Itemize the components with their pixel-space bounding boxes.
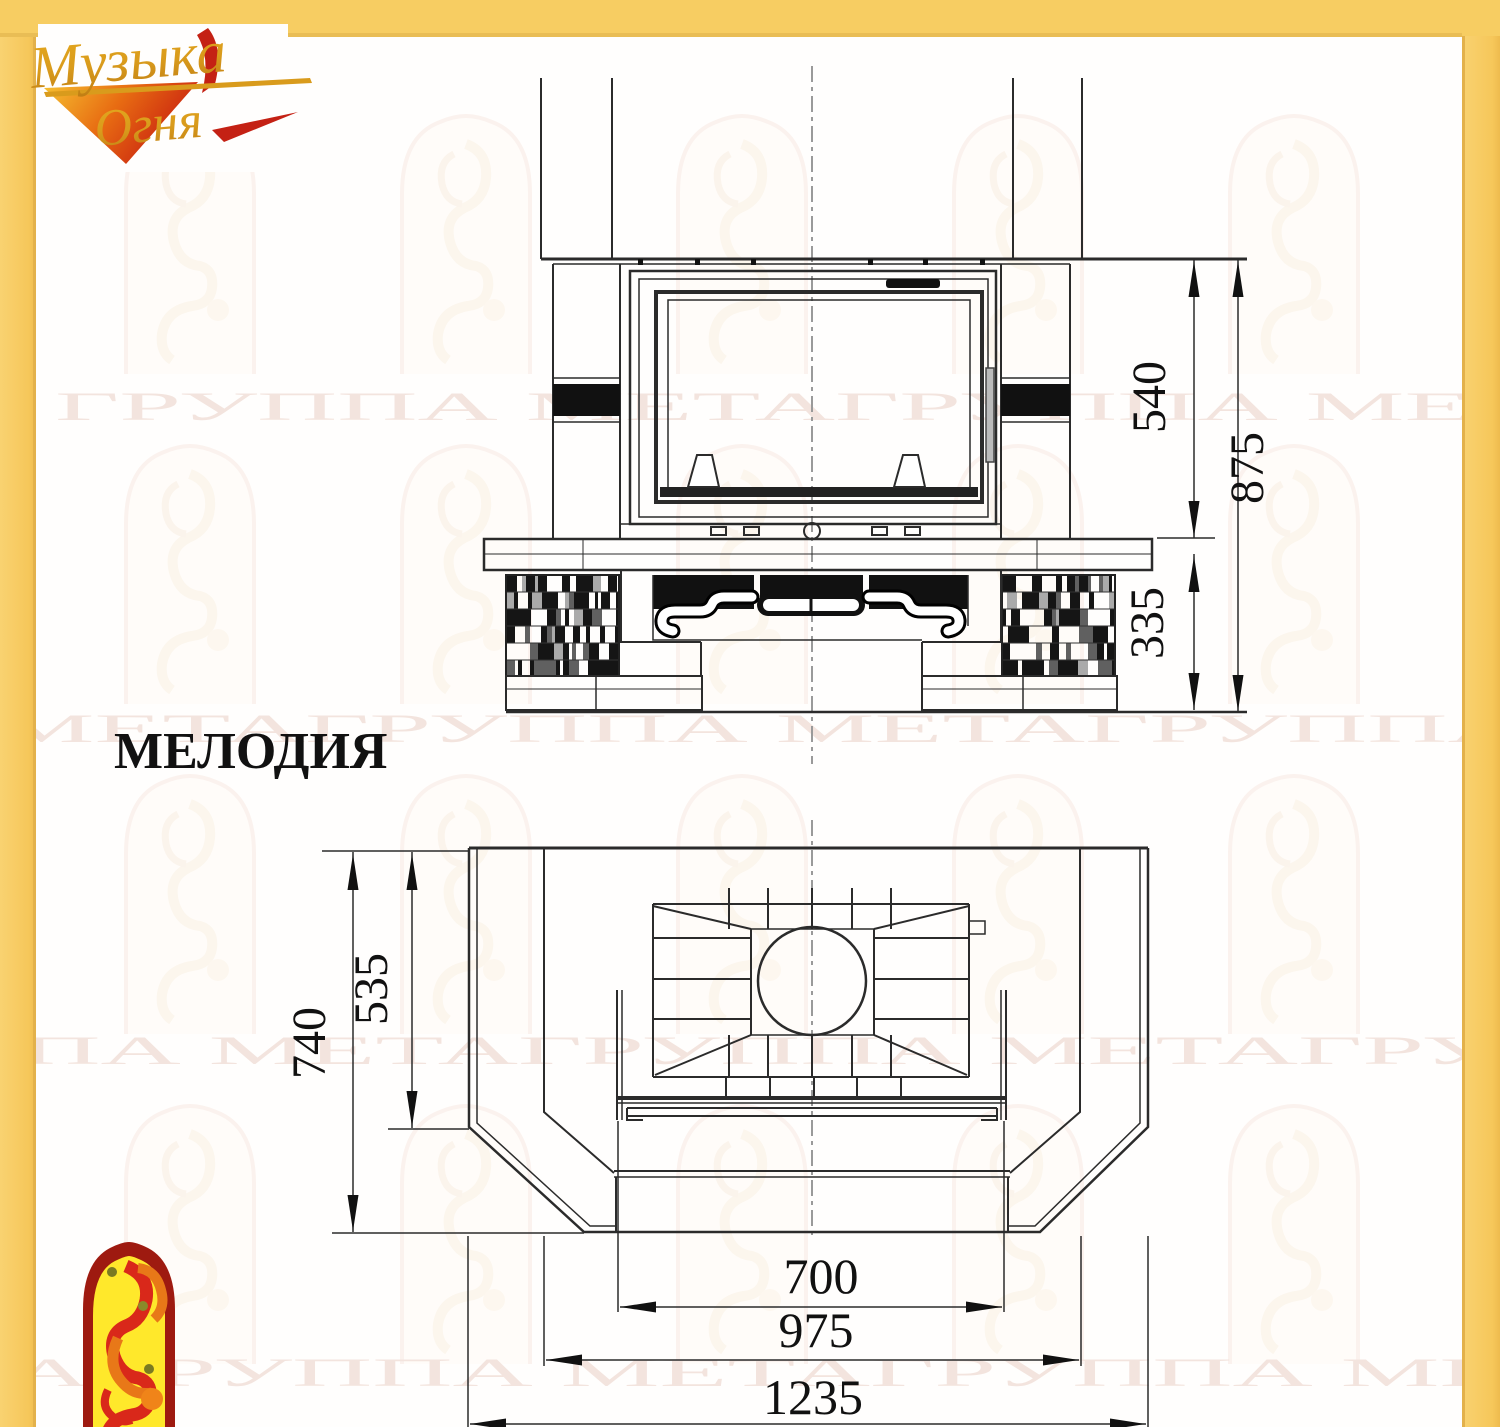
svg-text:740: 740 [283,1007,336,1079]
svg-text:540: 540 [1123,361,1176,433]
svg-text:700: 700 [784,1248,859,1304]
svg-text:975: 975 [779,1302,854,1358]
svg-text:МЕЛОДИЯ: МЕЛОДИЯ [114,723,387,780]
svg-text:ГРУППА МЕТАГРУППА МЕТАГРУППА М: ГРУППА МЕТАГРУППА МЕТАГРУППА МЕТА [0,1350,1500,1395]
svg-text:535: 535 [345,953,398,1025]
svg-text:ГРУППА МЕТАГРУППА МЕТАГРУППА М: ГРУППА МЕТАГРУППА МЕТАГРУППА МЕТА [55,384,1500,429]
svg-text:875: 875 [1221,432,1274,504]
svg-text:Огня: Огня [92,92,204,158]
svg-text:335: 335 [1121,587,1174,659]
svg-text:1235: 1235 [763,1369,863,1425]
